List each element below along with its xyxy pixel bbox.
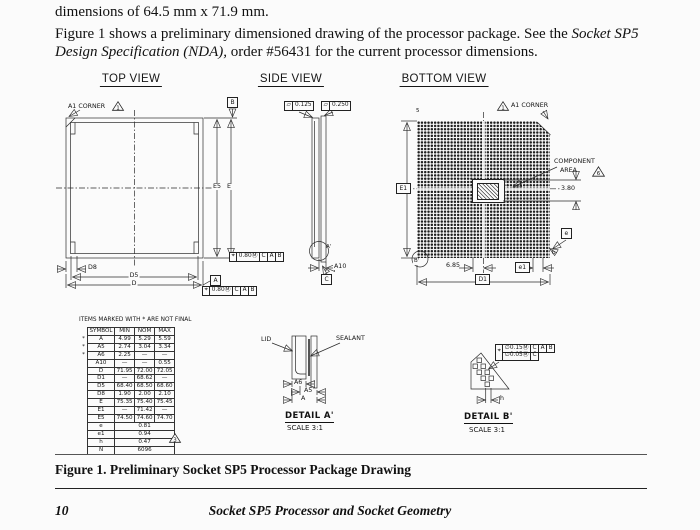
footer-rule: [55, 488, 647, 489]
component-area-label-line2: AREA: [560, 168, 577, 174]
table-row: e0.81: [80, 422, 175, 430]
bottom-view-linework: [401, 111, 581, 285]
dim-label-e: E: [226, 184, 232, 190]
top-view-linework: [56, 109, 237, 288]
feature-control-frame-top: ⌖0.80ⓂCAB: [229, 252, 284, 262]
spec-table-body: *A4.995.295.59*A52.743.043.34*A62.25——A1…: [80, 335, 175, 454]
detail-b-ref-label: B': [413, 259, 420, 265]
svg-text:3: 3: [173, 437, 177, 443]
table-row: *A52.743.043.34: [80, 343, 175, 351]
footer-title: Socket SP5 Processor and Socket Geometry: [150, 503, 510, 519]
table-row: e10.94: [80, 430, 175, 438]
table-row: *A62.25——: [80, 351, 175, 359]
flatness-icon: ▱: [322, 102, 329, 110]
detail-a-scale: SCALE 3:1: [287, 424, 323, 432]
svg-text:6: 6: [597, 171, 601, 177]
dim-label-a: A: [300, 396, 306, 402]
flatness-frame-1: ▱0.125: [284, 101, 314, 111]
dim-box-e1: E1: [396, 183, 411, 194]
detail-b-scale: SCALE 3:1: [469, 426, 505, 434]
dim-box-e1-pitch: e1: [515, 262, 530, 273]
detail-b-feature-control-frame: ⌖ ∅0.15Ⓜ C A B ∅0.05Ⓜ C: [495, 344, 555, 361]
note-triangle-icon: 3: [169, 433, 181, 443]
datum-b-box: B: [227, 97, 238, 108]
document-page: dimensions of 64.5 mm x 71.9 mm. Figure …: [0, 0, 700, 530]
table-row: *A4.995.295.59: [80, 335, 175, 343]
datum-a-box: A: [210, 275, 221, 286]
svg-text:1: 1: [116, 105, 120, 111]
dim-box-e: e: [561, 228, 572, 239]
datum-c-box: C: [321, 274, 332, 285]
dim-label-a6: A6: [293, 380, 303, 386]
figure-caption: Figure 1. Preliminary Socket SP5 Process…: [55, 462, 411, 478]
table-row: D81.902.002.10: [80, 391, 175, 399]
dim-label-d: D: [131, 281, 138, 287]
dim-label-d5: D5: [129, 273, 140, 279]
table-row: D71.9572.0072.05: [80, 367, 175, 375]
dimension-table: SYMBOL MIN NOM MAX *A4.995.295.59*A52.74…: [80, 327, 175, 455]
dim-label-h: h: [500, 396, 504, 402]
top-a1-corner-label: A1 CORNER: [68, 104, 105, 110]
dim-box-d1: D1: [475, 274, 490, 285]
position-symbol-icon: ⌖: [496, 345, 503, 361]
table-row: E1—71.42—: [80, 407, 175, 415]
flatness-frame-2: ▱0.250: [321, 101, 351, 111]
flatness-icon: ▱: [285, 102, 292, 110]
note-triangle-icon: 1: [112, 101, 124, 111]
table-row: E75.3575.4075.45: [80, 399, 175, 407]
note-triangle-icon: 6: [592, 166, 605, 177]
bottom-a1-corner-label: A1 CORNER: [511, 103, 548, 109]
table-header-row: SYMBOL MIN NOM MAX: [80, 328, 175, 336]
dim-label-b: b: [552, 251, 556, 257]
table-row: D568.4068.5068.60: [80, 383, 175, 391]
dim-label-380: 3.80: [560, 186, 576, 192]
svg-text:1: 1: [501, 105, 505, 111]
caption-top-rule: [55, 454, 647, 455]
table-row: h0.47: [80, 438, 175, 446]
dim-label-d8: D8: [88, 265, 97, 271]
side-view-linework: [299, 112, 337, 274]
feature-control-frame-bottom: ⌖0.80ⓂCAB: [202, 286, 257, 296]
page-number: 10: [55, 503, 69, 519]
component-area-label-line1: COMPONENT: [554, 159, 595, 165]
lid-label: LID: [261, 337, 271, 343]
dim-label-a5: A5: [303, 388, 313, 394]
dim-label-685: 6.85: [446, 263, 460, 269]
table-row: E574.5074.6074.70: [80, 414, 175, 422]
detail-b-title: DETAIL B': [464, 412, 513, 424]
note-triangle-icon: 1: [497, 101, 509, 111]
table-row: D1—68.62—: [80, 375, 175, 383]
dim-label-a10: A10: [333, 264, 347, 270]
table-note: ITEMS MARKED WITH * ARE NOT FINAL: [79, 318, 192, 324]
detail-a-ref-label: A': [326, 245, 331, 251]
sealant-label: SEALANT: [336, 336, 365, 342]
dim-label-e5: E5: [212, 184, 222, 190]
detail-a-title: DETAIL A': [285, 411, 334, 423]
table-row: A10——0.55: [80, 359, 175, 367]
grid-corner-label: 5: [416, 109, 420, 115]
table-row: N6096: [80, 446, 175, 454]
